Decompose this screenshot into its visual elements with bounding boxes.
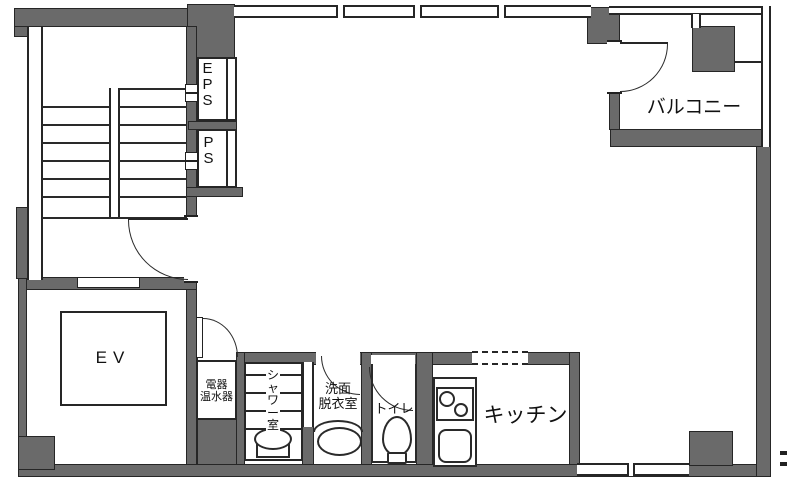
label-elevator: EV xyxy=(86,348,140,367)
label-washroom: 洗面 脱衣室 xyxy=(312,382,364,411)
washroom-basin xyxy=(317,427,362,456)
toilet-base xyxy=(387,452,407,464)
kitchen-sink xyxy=(438,429,472,463)
wall-below-ps xyxy=(186,187,243,197)
label-shower: シャワー室 xyxy=(266,369,280,432)
toilet-bowl xyxy=(382,416,412,456)
wall-toilet-kitchen xyxy=(416,352,433,477)
wall-below-water-heater xyxy=(197,419,237,465)
balcony-notch xyxy=(691,14,701,28)
kitchen-pass-through xyxy=(472,351,528,365)
wall-balcony-bottom xyxy=(610,129,771,147)
stair-tread xyxy=(42,142,110,144)
wall-vent xyxy=(185,84,198,93)
scan-artifact xyxy=(780,462,787,466)
wall-ev-corner-block xyxy=(18,436,55,470)
wall-right xyxy=(756,129,771,477)
stair-tread xyxy=(119,178,187,180)
scan-artifact xyxy=(780,451,787,455)
window-mullion xyxy=(627,463,635,476)
window-mullion xyxy=(336,5,345,18)
water-heater-door-leaf xyxy=(196,317,203,358)
stair-tread xyxy=(119,106,187,108)
pillar-balcony xyxy=(692,26,735,72)
stove-burner xyxy=(454,403,468,417)
stair-tread xyxy=(119,142,187,144)
shaft-ps-partition xyxy=(226,129,228,188)
stove-burner xyxy=(439,391,455,407)
label-water-heater: 電器 温水器 xyxy=(192,379,241,404)
balcony-partition-line xyxy=(734,61,763,63)
stair-tread xyxy=(42,178,110,180)
stair-tread xyxy=(42,196,110,198)
stair-tread xyxy=(119,196,187,198)
floor-plan: EPS PS バルコニー EV 電器 温水器 シャワー室 洗面 脱衣室 トイレ … xyxy=(0,0,787,495)
stairhall-left-wall xyxy=(27,27,43,280)
label-ps: PS xyxy=(200,135,217,167)
stair-tread xyxy=(119,124,187,126)
window-mullion xyxy=(413,5,422,18)
label-toilet: トイレ xyxy=(372,402,416,417)
elevator-doors xyxy=(77,277,140,288)
entrance-door-arc xyxy=(128,220,188,280)
window-mullion xyxy=(497,5,506,18)
balcony-door-arc xyxy=(620,44,668,92)
stair-tread xyxy=(119,160,187,162)
water-heater-door-arc xyxy=(203,318,238,357)
balcony-wall-right xyxy=(761,6,771,147)
stair-stringer xyxy=(109,88,120,218)
stair-tread xyxy=(42,106,110,108)
pillar-bottom-right xyxy=(689,431,733,466)
stair-tread xyxy=(119,88,187,90)
stair-tread xyxy=(42,160,110,162)
wall-vent xyxy=(185,93,198,102)
stair-tread xyxy=(42,124,110,126)
shaft-eps-partition xyxy=(226,57,228,121)
wall-stairhall-top xyxy=(14,8,190,27)
label-kitchen: キッチン xyxy=(478,404,573,428)
label-balcony: バルコニー xyxy=(639,97,749,118)
wall-vent xyxy=(185,161,198,170)
wall-vent xyxy=(185,152,198,161)
label-eps: EPS xyxy=(199,61,216,108)
balcony-wall-top xyxy=(609,6,771,15)
